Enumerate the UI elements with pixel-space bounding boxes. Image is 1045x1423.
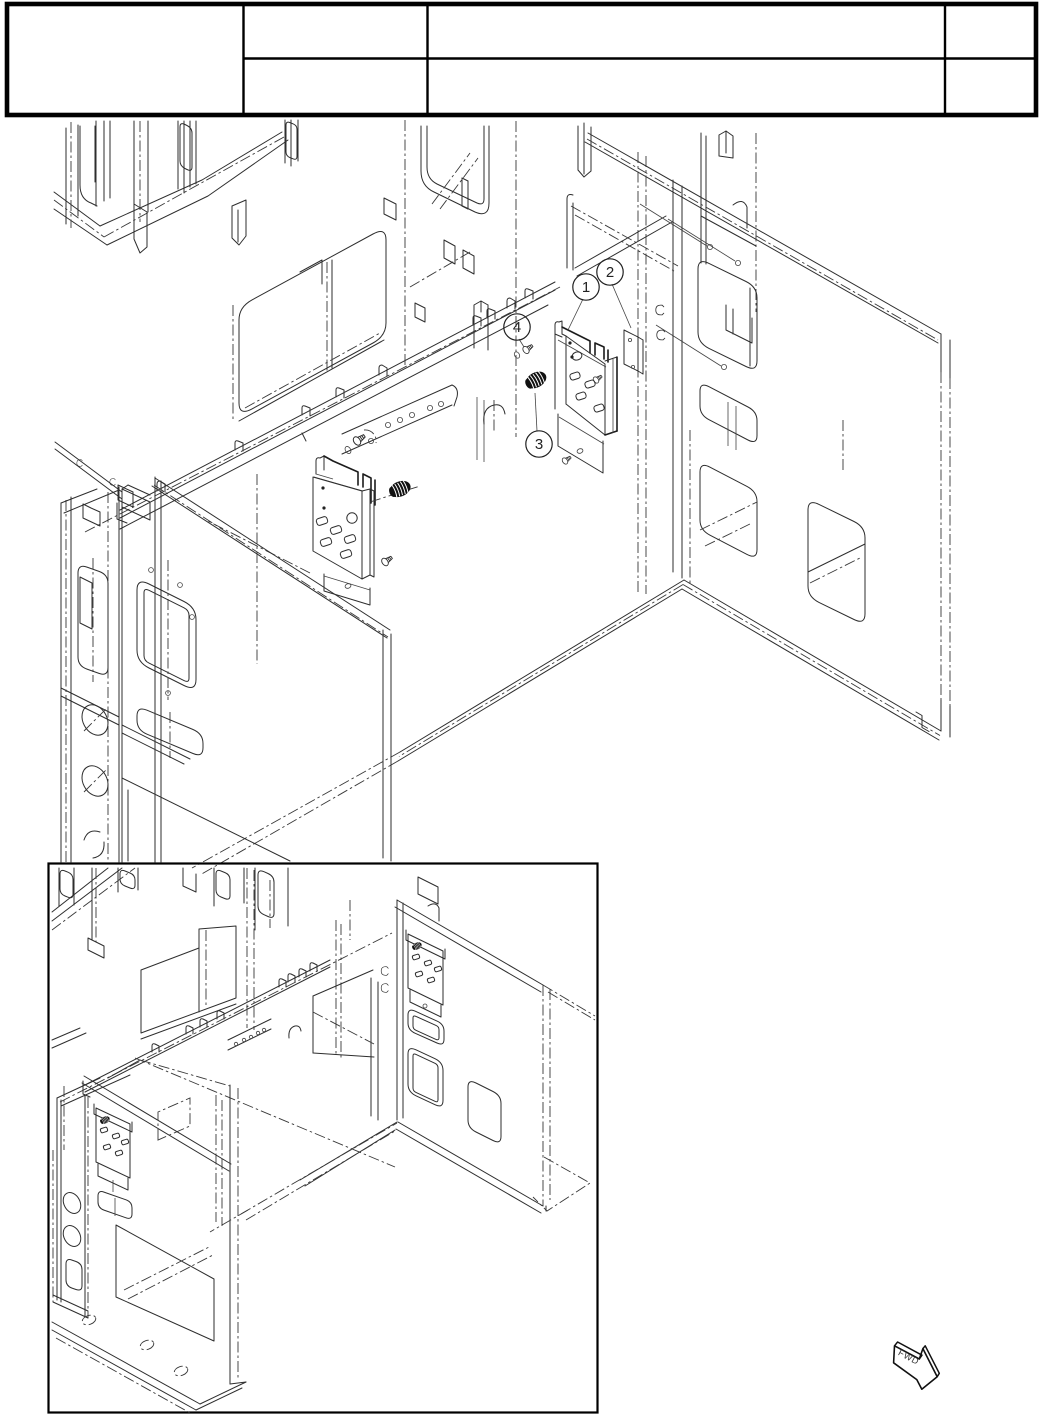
svg-text:3: 3	[535, 436, 543, 453]
svg-text:FWD: FWD	[897, 1347, 921, 1366]
svg-text:4: 4	[513, 319, 521, 336]
svg-text:2: 2	[606, 264, 614, 281]
svg-text:1: 1	[582, 279, 590, 296]
